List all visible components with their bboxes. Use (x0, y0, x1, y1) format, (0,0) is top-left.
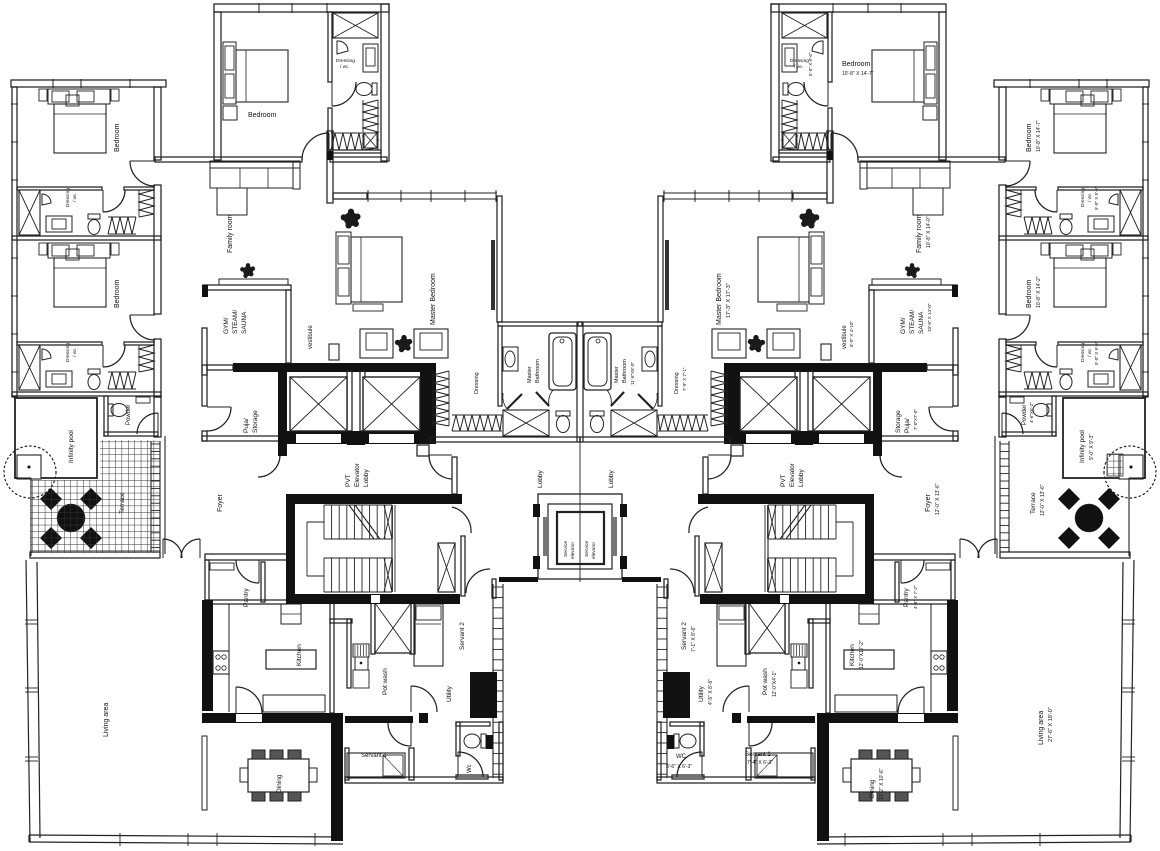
svg-text:Infinity pool: Infinity pool (68, 430, 75, 463)
svg-text:vestibule: vestibule (308, 325, 314, 349)
svg-text:SAUNA: SAUNA (241, 311, 248, 334)
svg-text:Service: Service (563, 541, 569, 557)
svg-text:5'-0" X 9'-6": 5'-0" X 9'-6" (1094, 341, 1099, 365)
svg-text:8'-0" X 4'-10": 8'-0" X 4'-10" (849, 321, 854, 347)
svg-text:Servant 1: Servant 1 (361, 753, 387, 759)
svg-text:/ wc: / wc (340, 64, 349, 70)
svg-text:Living area: Living area (1038, 711, 1045, 745)
svg-text:3'-6" X 6'-3": 3'-6" X 6'-3" (666, 764, 692, 770)
svg-text:/ wc: / wc (794, 64, 803, 70)
svg-text:elevator: elevator (591, 542, 597, 559)
svg-text:/ wc: / wc (1087, 193, 1093, 202)
svg-text:SAUNA: SAUNA (918, 311, 925, 334)
svg-text:Dining: Dining (276, 774, 283, 793)
svg-text:Pot wash: Pot wash (762, 668, 769, 695)
svg-text:GYM/: GYM/ (900, 317, 907, 334)
svg-text:Family room: Family room (227, 214, 234, 253)
svg-text:17'-3" X 17'-3": 17'-3" X 17'-3" (726, 283, 732, 318)
svg-text:Bathroom: Bathroom (622, 359, 628, 383)
svg-text:Utility: Utility (446, 685, 453, 702)
svg-text:Dressing: Dressing (474, 372, 480, 394)
svg-text:7'-1" X 8'-6": 7'-1" X 8'-6" (691, 626, 697, 652)
svg-text:12'-0" X 13'-6": 12'-0" X 13'-6" (1040, 484, 1046, 516)
svg-text:vestibule: vestibule (842, 325, 848, 349)
svg-text:Puja/: Puja/ (243, 418, 250, 433)
svg-text:Dressing: Dressing (336, 58, 355, 64)
svg-text:Master Bedroom: Master Bedroom (430, 273, 437, 325)
svg-text:/ wc: / wc (72, 348, 78, 357)
svg-text:Lobby: Lobby (798, 469, 805, 487)
svg-text:elevator: elevator (570, 542, 576, 559)
svg-text:5'-0" X 9'-6": 5'-0" X 9'-6" (1094, 186, 1099, 210)
svg-text:PVT: PVT (780, 474, 787, 487)
svg-text:Wc: Wc (467, 764, 473, 773)
svg-text:Kitchen: Kitchen (296, 644, 303, 666)
svg-text:4'-6"X6'-2": 4'-6"X6'-2" (1029, 402, 1034, 423)
svg-text:12'-0" X 13'-6": 12'-0" X 13'-6" (935, 483, 941, 515)
svg-text:5'-0" X 9'-6": 5'-0" X 9'-6" (808, 52, 813, 76)
svg-text:Storage: Storage (252, 410, 259, 433)
svg-text:Kitchen: Kitchen (849, 644, 856, 666)
svg-text:7'-0"X7'-0": 7'-0"X7'-0" (913, 409, 918, 430)
svg-text:STEAM/: STEAM/ (909, 310, 916, 334)
svg-text:9'-0" X 9'-3": 9'-0" X 9'-3" (1089, 434, 1095, 460)
svg-text:Master Bedroom: Master Bedroom (716, 273, 723, 325)
svg-text:Lobby: Lobby (537, 470, 544, 488)
svg-text:10'-8" X 14'-0": 10'-8" X 14'-0" (926, 216, 932, 248)
svg-text:10'-8" X 14'-2": 10'-8" X 14'-2" (1036, 276, 1042, 308)
svg-text:Lobby: Lobby (363, 469, 370, 487)
svg-text:Bedroom: Bedroom (1026, 123, 1033, 152)
svg-text:10'-8" X 14'-7": 10'-8" X 14'-7" (1036, 120, 1042, 152)
svg-text:Living area: Living area (103, 703, 110, 737)
svg-text:PVT: PVT (345, 474, 352, 487)
svg-text:Utility: Utility (698, 685, 705, 702)
svg-text:Service: Service (584, 541, 590, 557)
svg-text:27'-6" X 18'-0": 27'-6" X 18'-0" (1048, 707, 1054, 742)
svg-text:Powder: Powder (126, 405, 132, 425)
svg-text:Bedroom: Bedroom (842, 61, 871, 68)
svg-text:Storage: Storage (895, 410, 902, 433)
svg-text:Bedroom: Bedroom (114, 123, 121, 152)
svg-text:Bedroom: Bedroom (114, 279, 121, 308)
svg-text:Bathroom: Bathroom (535, 359, 541, 383)
svg-text:4'-8" X 7'-2": 4'-8" X 7'-2" (913, 585, 918, 609)
svg-text:12'-2" X 10'-6": 12'-2" X 10'-6" (879, 768, 885, 800)
svg-text:Terrace: Terrace (119, 492, 126, 514)
svg-text:Dressing: Dressing (65, 343, 71, 362)
svg-text:Infinity pool: Infinity pool (1079, 430, 1086, 463)
svg-text:Pantry: Pantry (903, 587, 910, 607)
svg-text:Master: Master (614, 366, 620, 383)
svg-text:7'-4" X 6'-3": 7'-4" X 6'-3" (747, 760, 773, 766)
svg-text:Foyer: Foyer (217, 493, 224, 512)
svg-text:Lobby: Lobby (608, 470, 615, 488)
svg-text:Servant 2: Servant 2 (459, 622, 466, 650)
svg-text:Dressing: Dressing (65, 188, 71, 207)
svg-text:Pantry: Pantry (243, 587, 250, 607)
svg-text:10'-8" X 14'-0": 10'-8" X 14'-0" (927, 303, 932, 332)
svg-text:Elevator: Elevator (354, 462, 361, 487)
svg-text:STEAM/: STEAM/ (232, 310, 239, 334)
svg-text:Dressing: Dressing (790, 58, 809, 64)
svg-text:Dressing: Dressing (674, 372, 680, 394)
svg-text:WC: WC (676, 754, 687, 760)
svg-text:GYM/: GYM/ (223, 317, 230, 334)
svg-text:Foyer: Foyer (925, 493, 932, 512)
svg-text:Master: Master (527, 366, 533, 383)
svg-text:/ wc: / wc (72, 193, 78, 202)
svg-text:12'-0"X17'-2": 12'-0"X17'-2" (859, 640, 865, 669)
svg-text:Dining: Dining (869, 779, 876, 798)
svg-text:Bedroom: Bedroom (248, 112, 277, 119)
svg-text:Dressing: Dressing (1080, 343, 1086, 362)
svg-text:11'-6"X8'-0": 11'-6"X8'-0" (630, 362, 635, 385)
svg-text:Puja/: Puja/ (904, 418, 911, 433)
svg-text:Powder: Powder (1022, 405, 1028, 425)
svg-text:/ wc: / wc (1087, 348, 1093, 357)
svg-text:Family room: Family room (916, 214, 923, 253)
svg-text:Dressing: Dressing (1080, 188, 1086, 207)
svg-text:10'-8" X 14'-7": 10'-8" X 14'-7" (842, 71, 874, 77)
svg-text:7'-9" X 7'-1": 7'-9" X 7'-1" (682, 367, 687, 391)
svg-text:Pot wash: Pot wash (382, 668, 389, 695)
svg-text:Bedroom: Bedroom (1026, 279, 1033, 308)
svg-text:Elevator: Elevator (789, 462, 796, 487)
svg-text:Terrace: Terrace (1030, 492, 1037, 514)
svg-text:4'-5" X 8'-6": 4'-5" X 8'-6" (708, 679, 714, 705)
svg-text:Servant 2: Servant 2 (681, 622, 688, 650)
svg-text:12'-0"X4'-1": 12'-0"X4'-1" (772, 671, 778, 697)
svg-text:Servant 1: Servant 1 (745, 752, 771, 758)
